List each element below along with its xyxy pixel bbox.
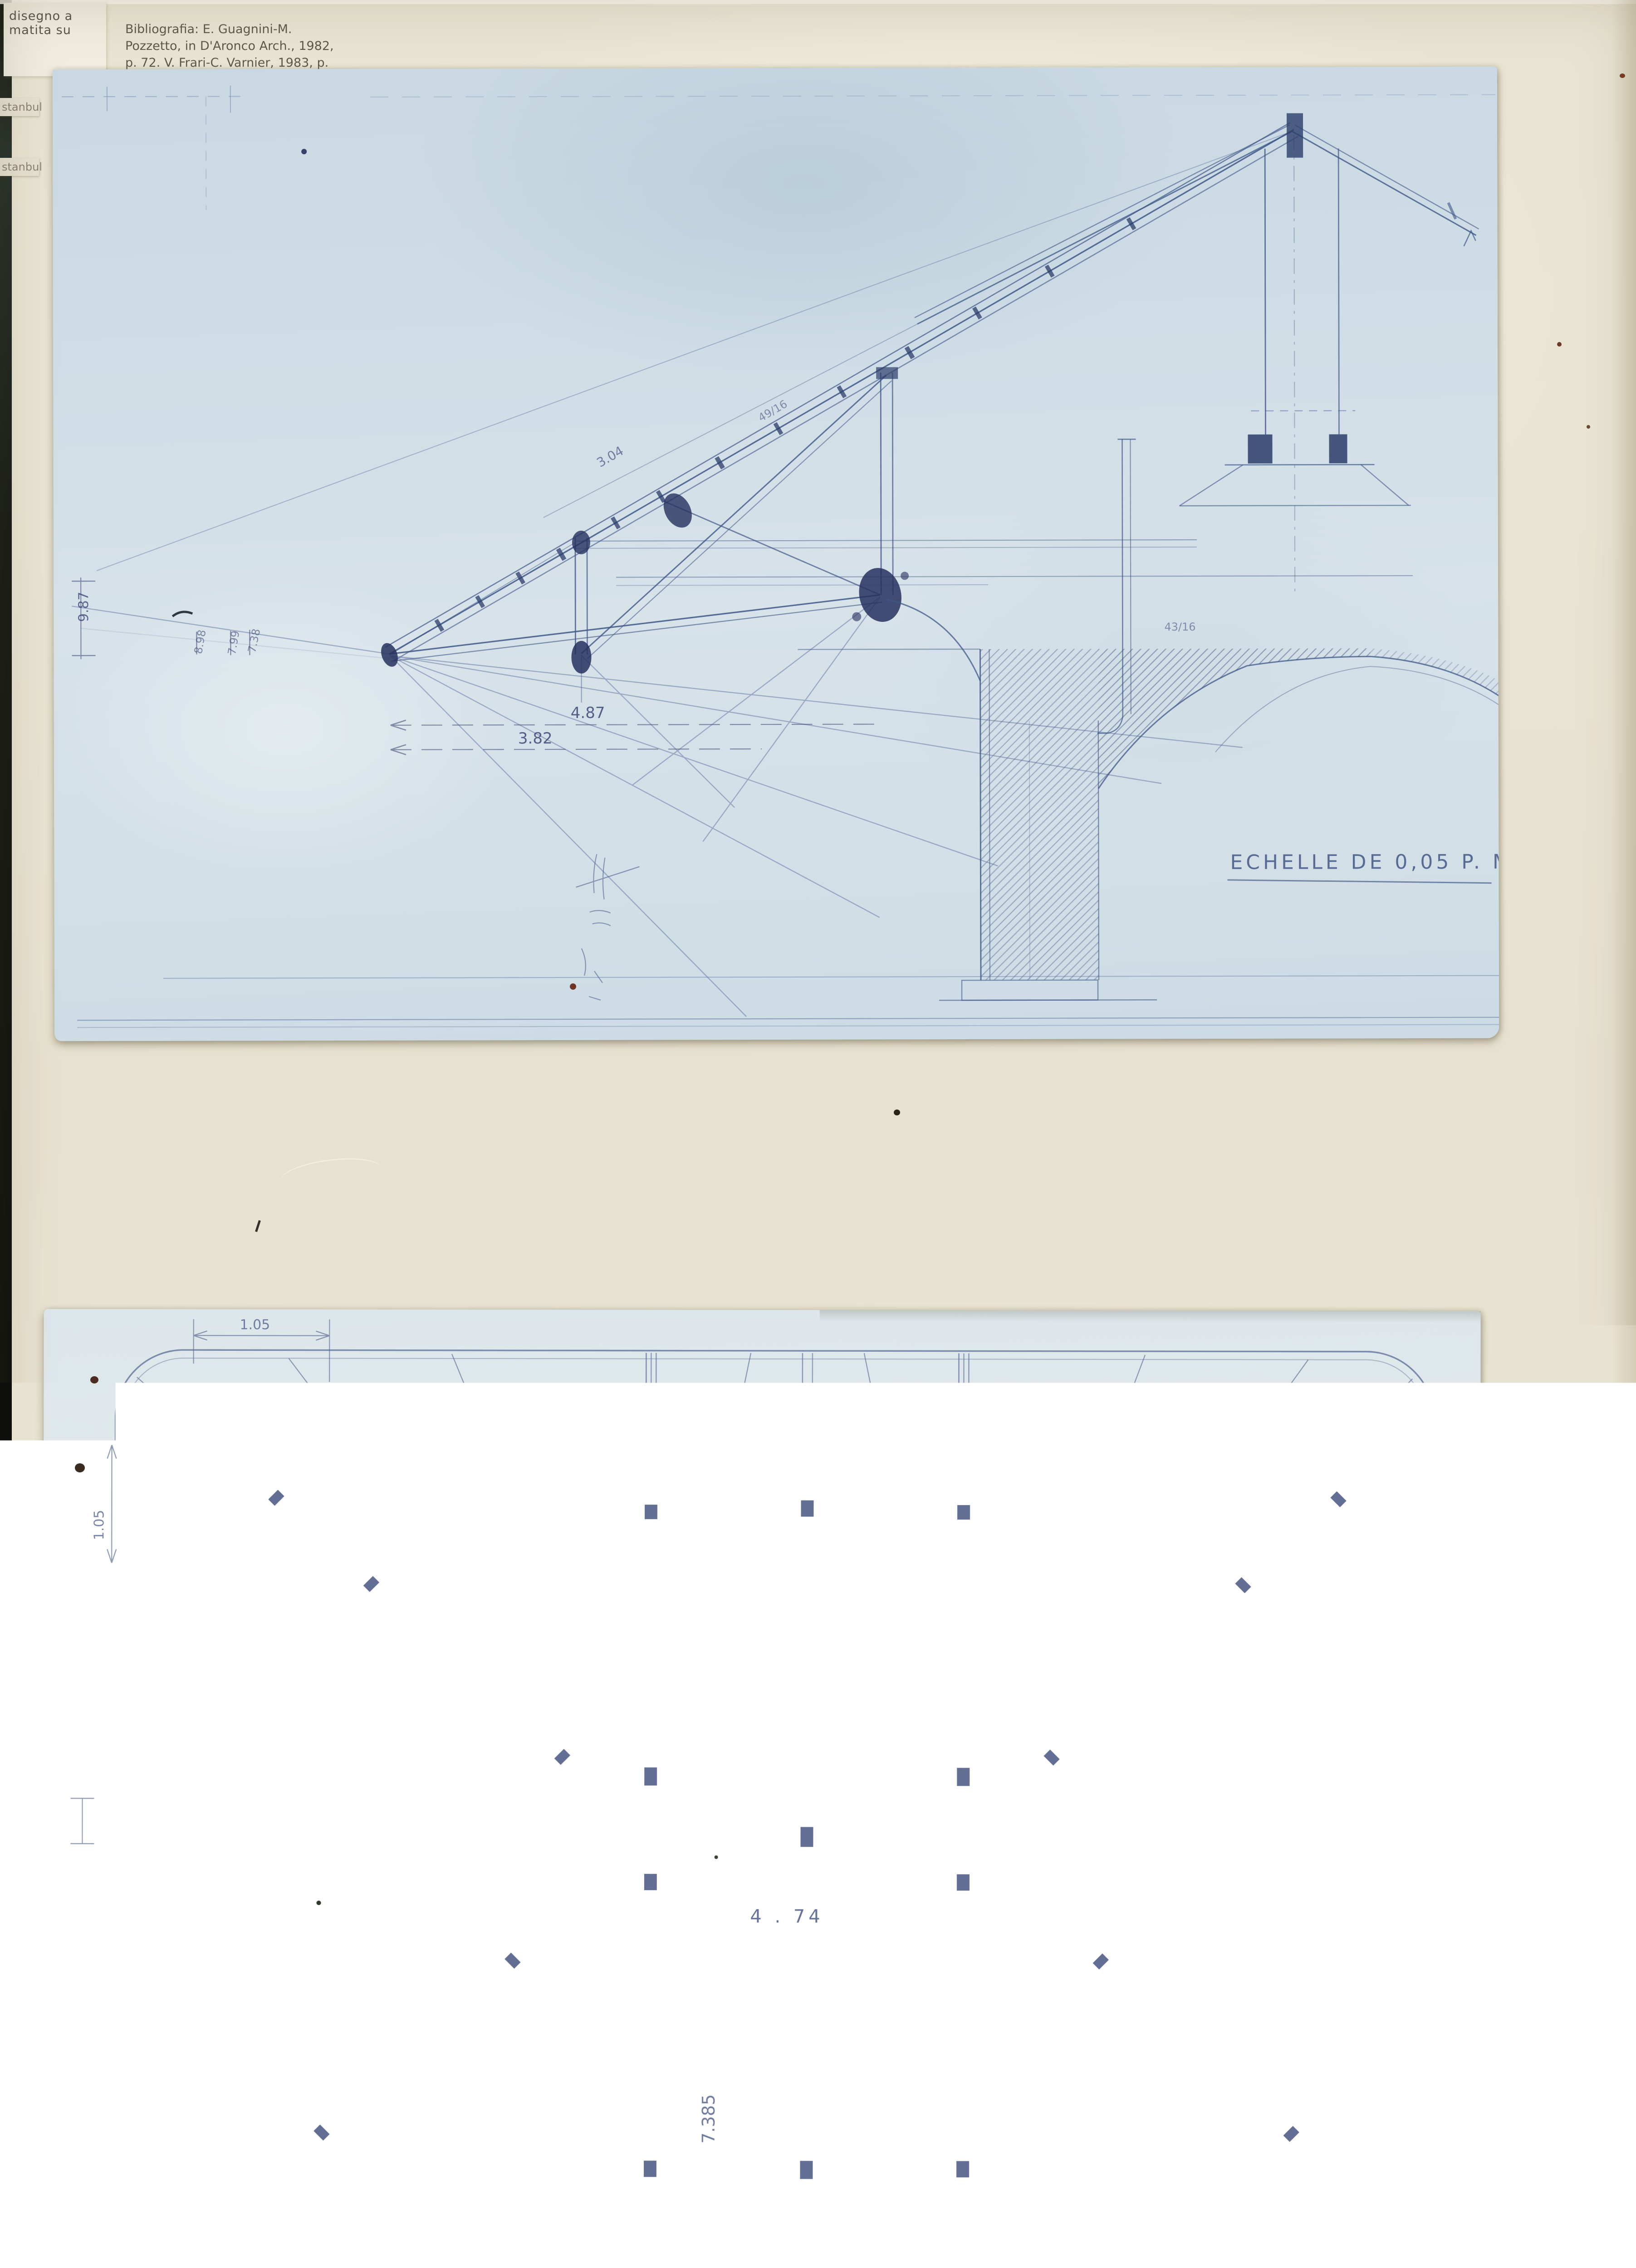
- board-speck: [1587, 425, 1590, 429]
- dim-minor-2: 7.99: [225, 630, 242, 655]
- bibliography-line1: Bibliografia: E. Guagnini-M. Pozzetto, i…: [125, 22, 295, 53]
- sheet-speck: [570, 983, 576, 990]
- dim-corner-left: 1.05: [91, 1510, 107, 1540]
- edge-tab-label: stanbul: [2, 101, 42, 113]
- board-mark: [255, 1220, 261, 1232]
- plan-border: [114, 1350, 1435, 2268]
- scale-note-group: ECHELLE DE 0,05 P. METRE: [1227, 850, 1499, 884]
- blueprint-sheet-section: 4.87 3.82 9.87 8.98 7.99 7.38 3.04 49/16…: [53, 67, 1499, 1041]
- board-right-shading: [1612, 0, 1636, 2268]
- dim-bay-width: 4 . 74: [750, 1906, 823, 1927]
- truss-section-drawing: 4.87 3.82 9.87 8.98 7.99 7.38 3.04 49/16…: [53, 67, 1499, 1041]
- edge-tab-istanbul-2: stanbul: [0, 158, 39, 176]
- king-post: [1179, 125, 1479, 506]
- roof-plan-drawing: 1.05 1.05 4 . 74 7.385 19. 39 41 48 1.05…: [42, 1309, 1480, 2268]
- dim-fraction-1: 49/16: [756, 397, 789, 424]
- horizontal-beams: [136, 1498, 1412, 2268]
- dim-height-left: 9.87: [76, 591, 92, 622]
- board-speck: [1557, 342, 1562, 347]
- blueprint-sheet-plan: 1.05 1.05 4 . 74 7.385 19. 39 41 48 1.05…: [42, 1309, 1480, 2268]
- board-speck: [75, 1463, 85, 1472]
- dim-span-lower: 3.82: [518, 729, 553, 748]
- king-post-pads: [876, 113, 1347, 464]
- dim-fraction-2: 43/16: [1164, 621, 1195, 633]
- scan-edge-top: [0, 0, 1636, 4]
- joint-blocks: [267, 1490, 1347, 2180]
- sheet-speck: [317, 1901, 321, 1905]
- construction-lines: [62, 83, 1496, 596]
- board-speck: [894, 1110, 900, 1115]
- dim-corner-top: 1.05: [240, 1317, 270, 1333]
- corner-label-card: disegno a matita su: [4, 3, 106, 76]
- board-speck: [90, 1376, 98, 1383]
- film-edge-left: [0, 0, 12, 2268]
- dim-rafter-length: 3.04: [594, 443, 626, 470]
- edge-tab-istanbul-1: stanbul: [0, 98, 39, 116]
- joint-nodes: [301, 147, 909, 674]
- dim-half-depth: 7.385: [699, 2094, 719, 2144]
- sheet-speck: [715, 1855, 718, 1859]
- scale-note: ECHELLE DE 0,05 P. METRE: [1230, 850, 1499, 874]
- board-speck: [1620, 73, 1625, 78]
- dim-minor-3: 7.38: [245, 628, 263, 654]
- corner-note: disegno a matita su: [9, 9, 106, 37]
- edge-tab-label: stanbul: [2, 161, 42, 173]
- dim-minor-1: 8.98: [192, 629, 209, 655]
- dim-span-upper: 4.87: [571, 704, 605, 722]
- hair-scratch: [172, 612, 192, 616]
- sheet-border-lines: [77, 976, 1499, 1028]
- vertical-beams: [474, 1353, 1141, 2268]
- photographed-drawing-board: { "labels": { "corner_note": "disegno a …: [0, 0, 1636, 2268]
- board-scratch: [279, 1154, 383, 1196]
